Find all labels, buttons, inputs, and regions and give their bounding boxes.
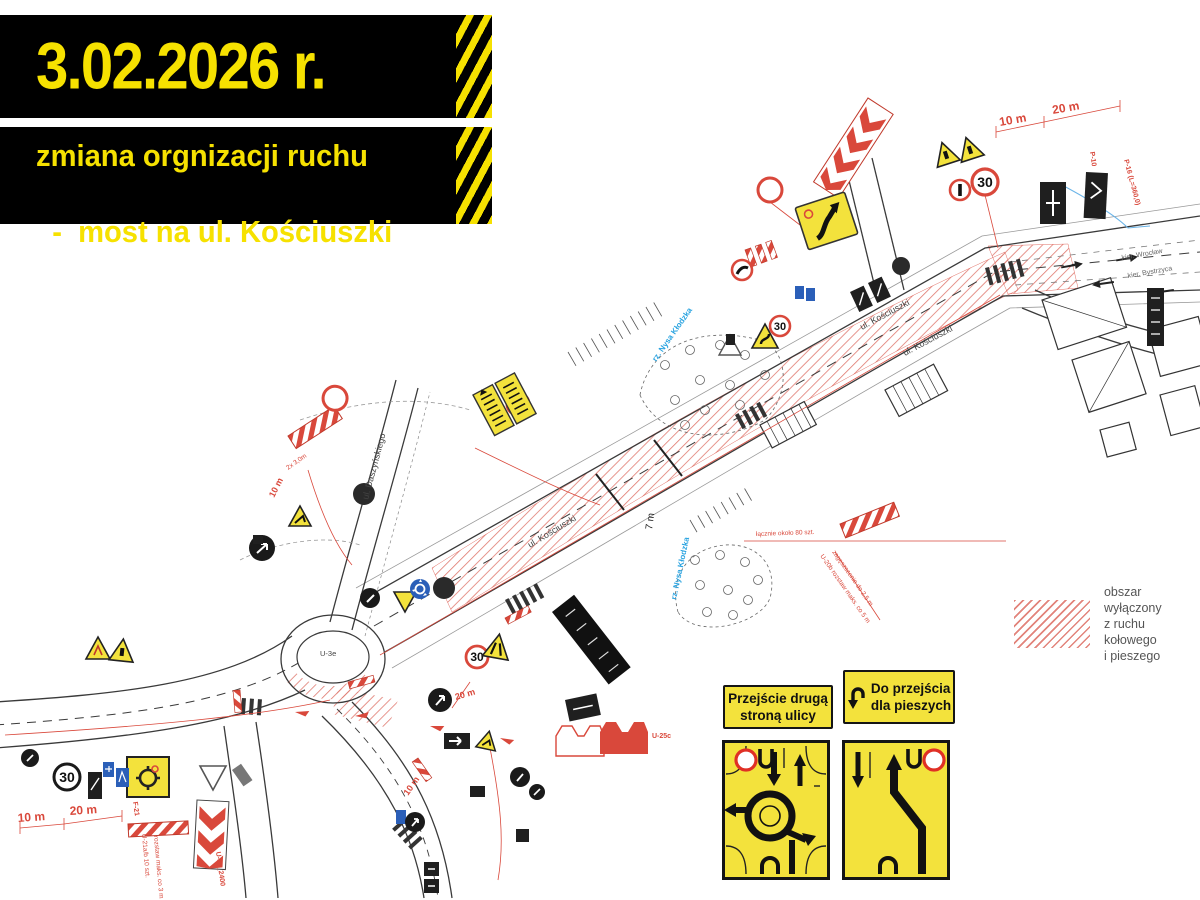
keep-right-sign [510, 767, 530, 787]
marking-code-label: P-16 (L=360,0) [1122, 159, 1141, 206]
dimension-label: 20 m [454, 687, 476, 702]
board-right-line2: dla pieszych [871, 698, 951, 713]
f21-detour-board-icon [127, 757, 169, 797]
closed-area-swatch [1014, 600, 1090, 648]
speed-limit-30-sign: 30 [770, 316, 790, 336]
subtitle-line1: zmiana orgnizacji ruchu [36, 138, 368, 173]
legend: obszar wyłączony z ruchu kołowego i pies… [1014, 584, 1200, 664]
black-sign [424, 862, 439, 893]
no-turn-sign [950, 180, 970, 200]
no-turn-sign [732, 260, 752, 280]
barrier-board-icon [128, 821, 189, 837]
legend-line1: obszar wyłączony [1104, 584, 1200, 616]
dimension-label: 2x 3,0m [285, 453, 308, 472]
speed-limit-30-sign: 30 [466, 646, 488, 668]
dimension-label: 10 m [17, 809, 45, 825]
river-label: rz. Nysa Kłodzka [669, 536, 691, 601]
annotation-label: U-21a/b 10 szt. [140, 834, 151, 879]
tree-mark [353, 257, 910, 599]
date-banner: 3.02.2026 r. [0, 15, 492, 118]
keep-right-sign [428, 688, 452, 712]
mini-barrier-icon [505, 606, 531, 624]
pedestrian-info-board-left: Przejście drugą stroną ulicy [723, 685, 833, 729]
mini-barrier-icon [233, 690, 242, 713]
svg-text:30: 30 [774, 321, 786, 333]
annotation-label: łącznie około 80 szt. [756, 529, 815, 538]
svg-text:30: 30 [59, 769, 75, 785]
u25c-barrier-icon [600, 722, 648, 754]
svg-text:30: 30 [470, 650, 484, 664]
black-sign [516, 829, 529, 842]
black-sign [470, 786, 485, 797]
lane-shift-diagram-sign [842, 740, 950, 880]
speed-limit-30-sign: 30 [972, 169, 998, 195]
black-sign [868, 277, 891, 303]
u25c-barrier-icon [556, 726, 604, 756]
traffic-change-announcement: U-3e [0, 0, 1200, 900]
hazard-stripes-icon [456, 15, 492, 118]
roundabout-sign [410, 579, 430, 599]
blue-info-sign [795, 286, 815, 301]
keep-right-sign [21, 749, 39, 767]
warning-triangle-icon [86, 637, 110, 659]
pedestrian-info-board-right: Do przejścia dla pieszych [843, 670, 955, 724]
info-double-board-icon [473, 372, 537, 436]
black-sign [726, 334, 735, 345]
gray-panel [232, 764, 252, 787]
speed-limit-30-sign: 30 [54, 764, 80, 790]
u-turn-arrow-icon [847, 684, 867, 710]
subtitle-text: zmiana orgnizacji ruchu - most na ul. Ko… [36, 137, 392, 251]
closed-entry-icon [736, 750, 756, 770]
roadworks-triangle-icon [289, 506, 311, 526]
annotation-label: rozstaw maks. co 3 m [152, 836, 164, 899]
board-left-line1: Przejście drugą [728, 691, 828, 706]
marking-code-label: U-25c [652, 733, 671, 740]
chevron-board-icon [814, 98, 894, 198]
black-sign [88, 772, 102, 799]
closed-entry-icon [924, 750, 944, 770]
yield-outline-triangle-icon [200, 766, 226, 790]
dimension-label: 7 m [644, 512, 657, 530]
subtitle-line2: - most na ul. Kościuszki [52, 214, 392, 249]
prohibition-sign [758, 178, 782, 202]
dimension-label: 10 m [401, 775, 421, 798]
warning-triangle-icon [931, 139, 961, 167]
subtitle-banner: zmiana orgnizacji ruchu - most na ul. Ko… [0, 127, 492, 224]
keep-right-sign [405, 812, 425, 832]
detour-board-icon [795, 192, 858, 250]
direction-board [1147, 288, 1164, 346]
direction-label: kier. Bystrzyca [1127, 265, 1173, 280]
board-right-line1: Do przejścia [871, 681, 951, 696]
legend-text: obszar wyłączony z ruchu kołowego i pies… [1104, 584, 1200, 664]
crossing-info-sign [1084, 172, 1108, 219]
dimension-label: 10 m [267, 476, 285, 499]
arrow-board-sign [444, 733, 470, 749]
barrier-with-prohibition-icon [278, 382, 356, 449]
island-label: U-3e [320, 649, 336, 658]
hazard-stripes-icon [456, 127, 492, 224]
roadworks-triangle-icon [476, 729, 499, 751]
chevron-board-icon [193, 800, 229, 870]
legend-line2: z ruchu kołowego [1104, 616, 1200, 648]
blue-info-sign [103, 762, 114, 777]
river-label: rz. Nysa Kłodzka [650, 305, 694, 363]
large-black-board [552, 595, 631, 685]
board-left-line2: stroną ulicy [740, 708, 816, 723]
black-sign [565, 693, 601, 721]
keep-right-sign [529, 784, 545, 800]
date-text: 3.02.2026 r. [36, 27, 325, 103]
svg-text:30: 30 [977, 174, 993, 190]
keep-right-sign [360, 588, 380, 608]
detour-roundabout-diagram-sign [722, 740, 830, 880]
crossing-info-sign [1040, 182, 1066, 224]
marking-code-label: F-21 [131, 801, 140, 816]
blue-info-sign [396, 810, 406, 824]
road-narrows-triangle-icon [482, 632, 512, 660]
direction-label: kier. Wrocław [1121, 248, 1164, 262]
black-sign [253, 535, 263, 544]
dimension-label: 20 m [1051, 98, 1080, 117]
marking-code-label: P-10 [1088, 151, 1097, 167]
warning-triangle-icon [109, 638, 135, 662]
dimension-label: 20 m [69, 802, 97, 818]
legend-line3: i pieszego [1104, 648, 1200, 664]
blue-info-sign [116, 768, 129, 787]
barrier-board-icon [840, 502, 899, 538]
